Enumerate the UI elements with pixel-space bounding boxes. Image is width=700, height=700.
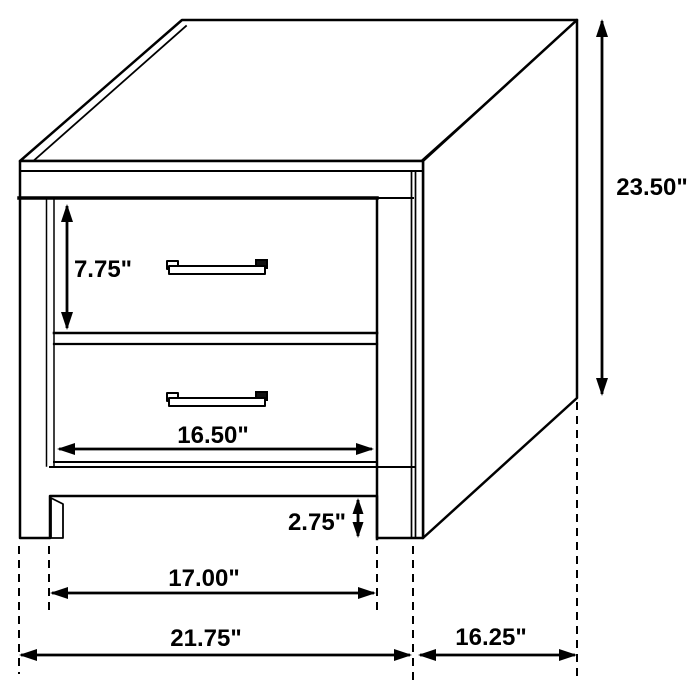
arrowhead-down-icon <box>353 522 364 538</box>
furniture-dimension-diagram: 23.50" 7.75" 16.50" 2.75" 17 <box>0 0 700 700</box>
dimension-overall-width: 21.75" <box>19 625 412 661</box>
dimension-label-overall-depth: 16.25" <box>455 624 526 651</box>
nightstand-line-drawing: 23.50" 7.75" 16.50" 2.75" 17 <box>0 0 700 700</box>
arrowhead-left-icon <box>418 649 436 661</box>
front-face <box>20 161 423 538</box>
dimension-overall-depth: 16.25" <box>418 624 577 661</box>
arrowhead-down-icon <box>596 378 608 396</box>
dimension-leg-span-width: 17.00" <box>50 565 376 599</box>
arrowhead-right-icon <box>559 649 577 661</box>
arrowhead-left-icon <box>50 587 68 599</box>
arrowhead-right-icon <box>358 587 376 599</box>
dimension-label-overall-width: 21.75" <box>170 625 241 652</box>
dimension-base-clearance: 2.75" <box>288 498 364 538</box>
dimension-label-leg-span-width: 17.00" <box>168 565 239 592</box>
handle-bar <box>169 266 265 274</box>
dimension-overall-height: 23.50" <box>596 19 688 396</box>
handle-bar <box>169 398 265 406</box>
left-leg-side <box>51 498 63 538</box>
arrowhead-up-icon <box>596 19 608 37</box>
arrowhead-left-icon <box>19 649 37 661</box>
dimension-label-drawer-height: 7.75" <box>74 256 132 283</box>
arrowhead-up-icon <box>353 498 364 514</box>
dimension-label-overall-height: 23.50" <box>616 174 687 201</box>
dimension-label-drawer-width: 16.50" <box>177 422 248 449</box>
dimension-label-base-clearance: 2.75" <box>288 509 346 536</box>
arrowhead-right-icon <box>394 649 412 661</box>
